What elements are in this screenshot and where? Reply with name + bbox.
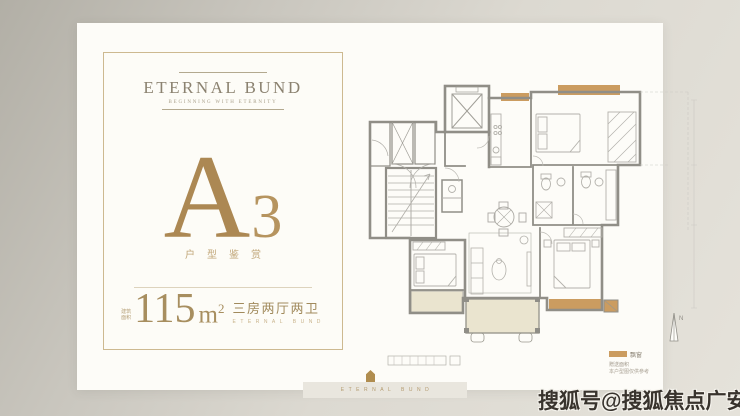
bedroom-master <box>544 228 602 288</box>
area-value: 115 <box>134 293 195 326</box>
unit-caption: 户型鉴赏 <box>104 246 342 261</box>
neighbor-outline <box>640 92 697 308</box>
bedroom-west <box>413 242 456 286</box>
dining-table-icon <box>488 202 526 236</box>
stairs-icon <box>372 140 434 236</box>
unit-number: 3 <box>251 183 282 251</box>
legend-line3: 本户型图仅供参考 <box>609 368 649 375</box>
area-prefix-label: 建筑 面积 <box>121 309 131 321</box>
brand-logo: ETERNAL BUND <box>104 78 342 98</box>
layout-sub-label: ETERNAL BUND <box>232 319 324 325</box>
legend-bay-window-swatch <box>609 351 627 357</box>
bathroom-fixtures <box>442 170 616 220</box>
layout-wrap: 三房两厅两卫 ETERNAL BUND <box>232 298 324 325</box>
plan-legend: 飘窗 赠送面积 本户型图仅供参考 <box>609 351 649 375</box>
brand-tagline: BEGINNING WITH ETERNITY <box>104 100 342 105</box>
bedroom-north <box>536 112 636 162</box>
poster-card: ETERNAL BUND BEGINNING WITH ETERNITY A3 … <box>77 23 663 390</box>
floor-plan: N 飘窗 赠送面积 本户型图仅供参考 <box>368 70 700 378</box>
legend-swatch-label: 飘窗 <box>630 351 642 359</box>
unit-letter: A <box>164 130 251 263</box>
footer-emblem-text: ETERNAL BUND <box>337 387 433 393</box>
area-row: 建筑 面积 115 m2 三房两厅两卫 ETERNAL BUND <box>104 293 342 326</box>
north-label: N <box>679 316 683 322</box>
layout-label: 三房两厅两卫 <box>232 298 324 317</box>
legend-line2: 赠送面积 <box>609 361 629 368</box>
logo-top-rule <box>179 72 267 73</box>
north-arrow-icon: N <box>670 313 683 341</box>
footer-emblem-strip: ETERNAL BUND <box>303 382 467 398</box>
logo-bottom-rule <box>162 109 284 110</box>
living-room-furniture <box>469 233 531 294</box>
watermark-text: 搜狐号@搜狐焦点广安站 <box>538 385 740 415</box>
kitchen-fixtures <box>491 114 502 165</box>
unit-info-panel: ETERNAL BUND BEGINNING WITH ETERNITY A3 … <box>103 52 343 350</box>
area-unit: m2 <box>199 298 225 326</box>
unit-name: A3 <box>104 149 342 248</box>
